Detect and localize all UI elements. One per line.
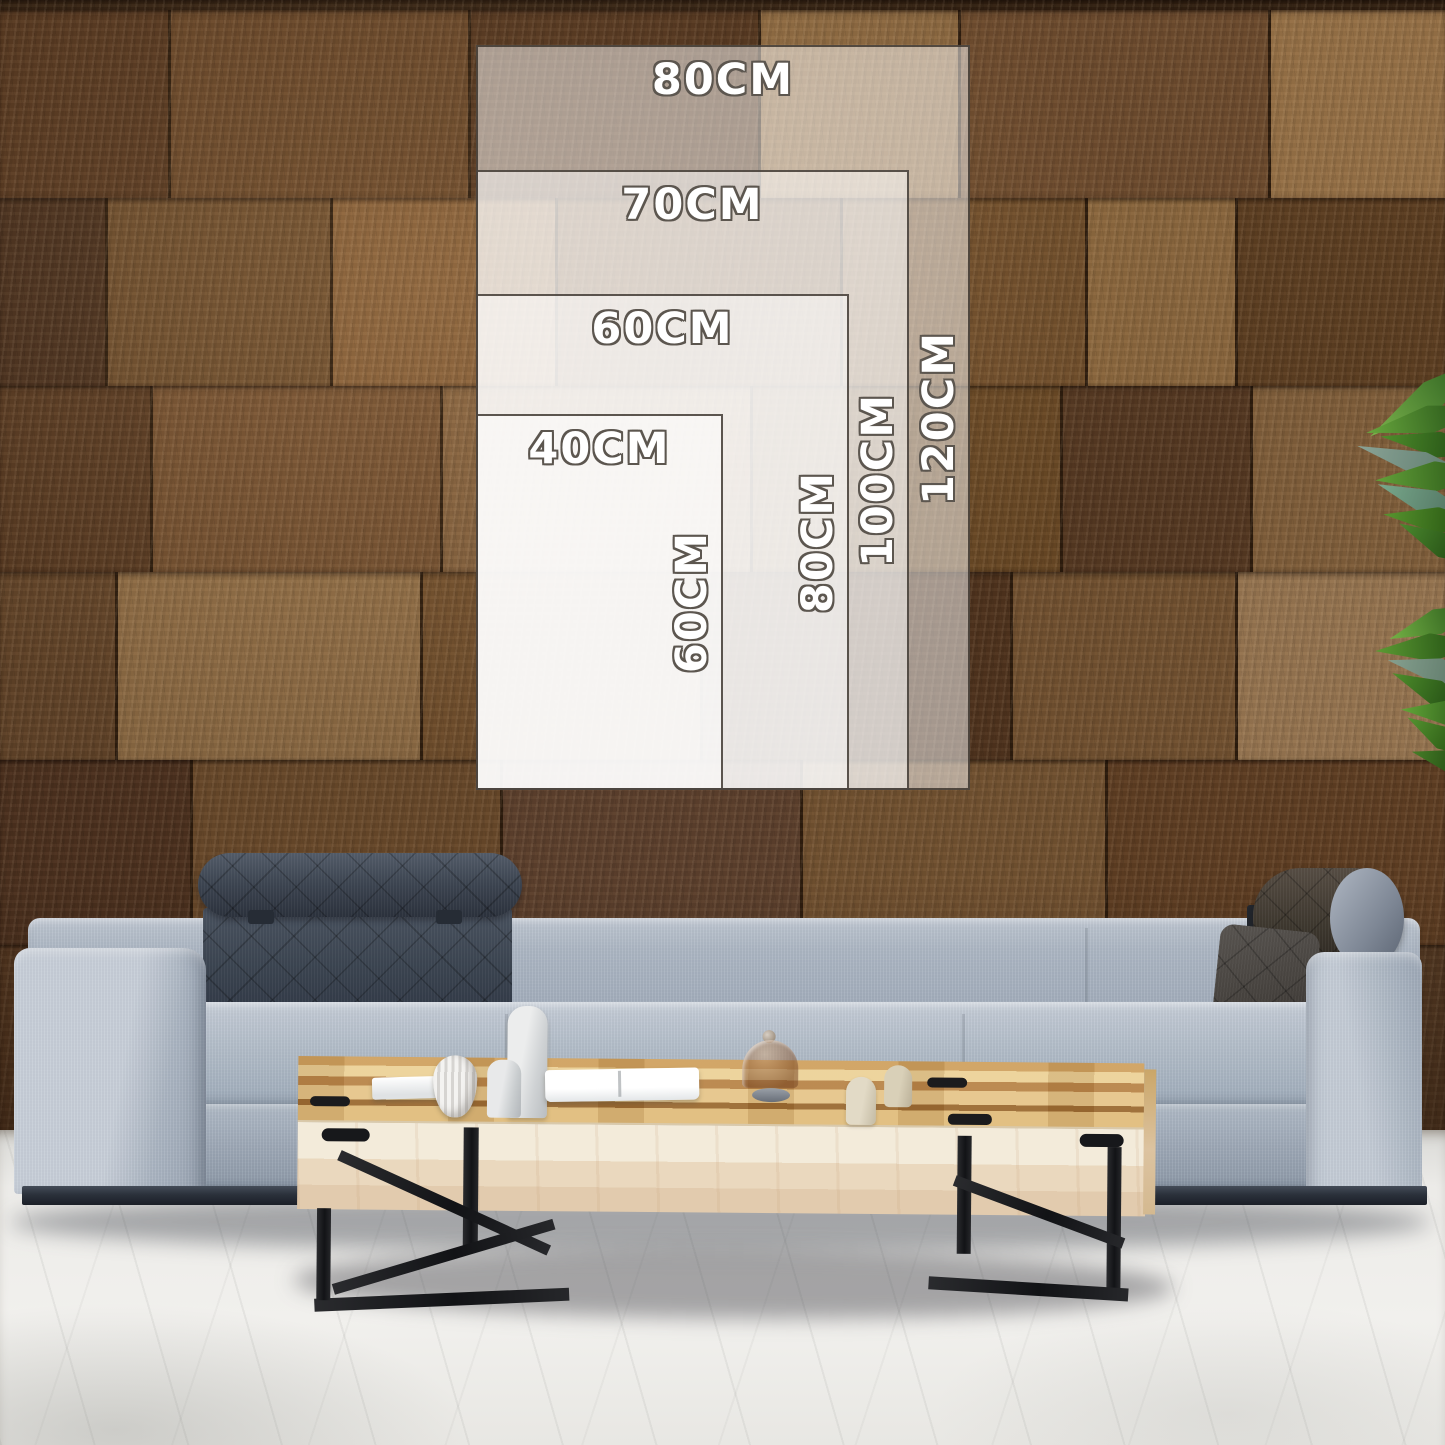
table-leg-bar bbox=[316, 1208, 331, 1300]
table-grommet bbox=[927, 1077, 967, 1087]
marble-jar-short bbox=[487, 1060, 522, 1118]
table-leg-bar bbox=[463, 1127, 479, 1251]
table-leg-bar bbox=[957, 1136, 972, 1254]
table-leg-bar bbox=[1106, 1147, 1121, 1293]
open-book bbox=[545, 1067, 700, 1102]
table-grommet bbox=[948, 1114, 992, 1125]
cream-dome bbox=[846, 1077, 876, 1125]
cream-dome bbox=[884, 1065, 912, 1107]
book-stack bbox=[372, 1076, 439, 1100]
glass-dome-base bbox=[752, 1088, 790, 1102]
size-guide-scene: 80CM 120CM 70CM 100CM 60CM 80CM 40CM 60C… bbox=[0, 0, 1445, 1445]
coffee-table bbox=[0, 0, 1445, 1445]
table-handle bbox=[322, 1128, 370, 1141]
table-right-side bbox=[1143, 1069, 1156, 1214]
table-handle bbox=[1080, 1134, 1124, 1147]
glass-dome bbox=[742, 1040, 798, 1088]
open-book-gutter bbox=[618, 1071, 621, 1097]
table-grommet bbox=[310, 1096, 350, 1106]
